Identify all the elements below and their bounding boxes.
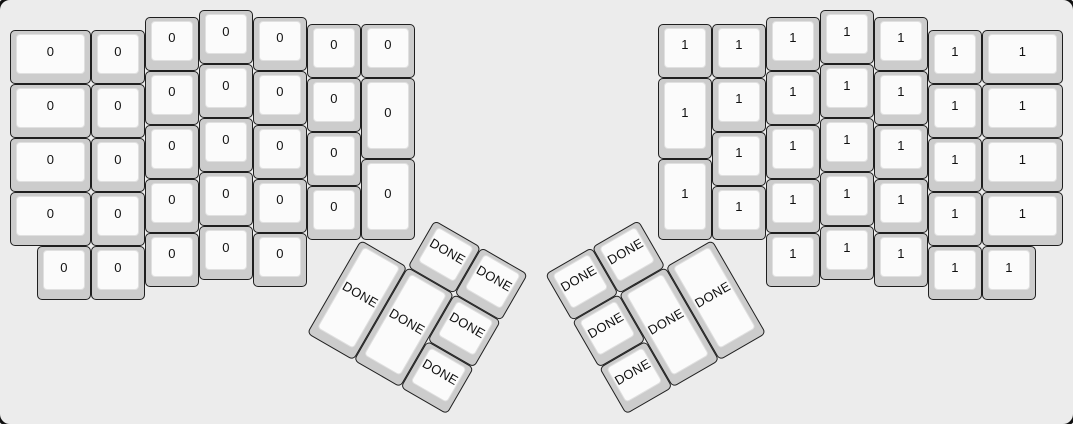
keyboard-canvas: 0 0 0 0 0 0 0 0 0 0 0 0 0 0 0 0 0 0 0 0 … [0,0,1073,424]
key-label: DONE [599,226,655,282]
